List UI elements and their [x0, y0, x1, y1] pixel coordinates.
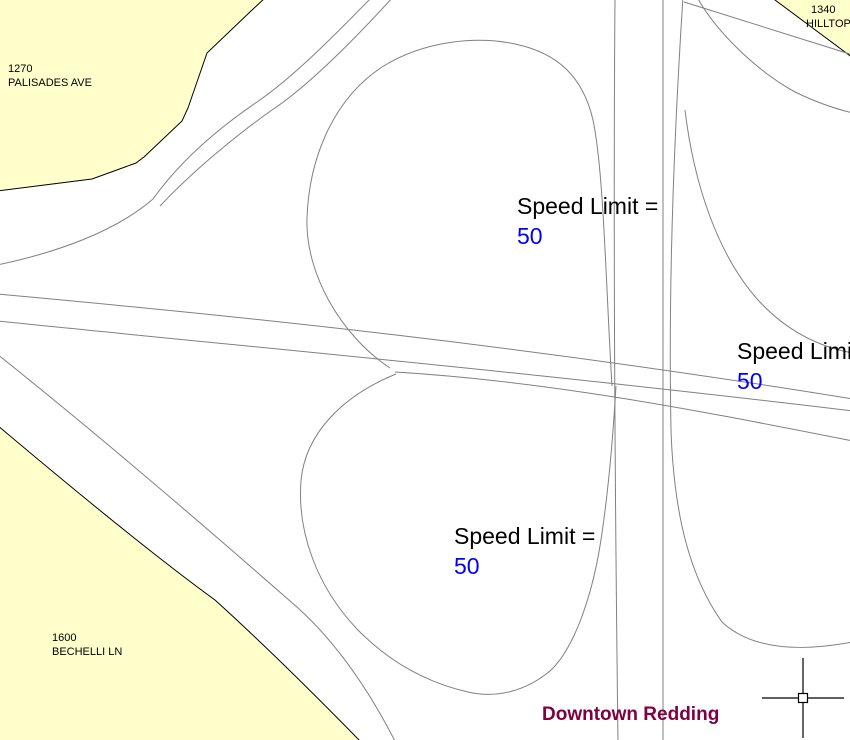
- parcel-number: 1600: [52, 631, 122, 645]
- parcel-street: BECHELLI LN: [52, 645, 122, 659]
- crosshair-cursor: [762, 658, 844, 738]
- map-canvas[interactable]: [0, 0, 850, 740]
- speed-limit-label-south: Speed Limit = 50: [454, 521, 595, 581]
- speed-limit-text: Speed Limit =: [737, 336, 850, 366]
- region-label-downtown-redding: Downtown Redding: [542, 704, 719, 726]
- speed-limit-text: Speed Limit =: [517, 191, 658, 221]
- freeway-ramp-southeast: [670, 0, 850, 647]
- arterial-line-north: [0, 294, 850, 399]
- speed-limit-text: Speed Limit =: [454, 521, 595, 551]
- arterial-line-south: [0, 321, 850, 411]
- speed-limit-value: 50: [517, 221, 658, 251]
- parcel-number: 1340: [806, 3, 850, 17]
- speed-limit-value: 50: [454, 551, 595, 581]
- parcel-label-bechelli: 1600 BECHELLI LN: [52, 631, 122, 659]
- map-viewport[interactable]: { "map": { "region_label": "Downtown Red…: [0, 0, 850, 740]
- parcel-label-palisades: 1270 PALISADES AVE: [8, 62, 92, 90]
- ramp-curve-northeast-lower: [685, 110, 850, 353]
- parcel-polygon-palisades: [0, 0, 266, 191]
- speed-limit-label-north: Speed Limit = 50: [517, 191, 658, 251]
- parcel-street: PALISADES AVE: [8, 76, 92, 90]
- parcel-label-hilltop: 1340 HILLTOP: [806, 3, 850, 31]
- freeway-line-west: [614, 0, 618, 740]
- parcel-street: HILLTOP: [806, 17, 850, 31]
- speed-limit-value: 50: [737, 366, 850, 396]
- parcel-number: 1270: [8, 62, 92, 76]
- speed-limit-label-east: Speed Limit = 50: [737, 336, 850, 396]
- parcel-polygon-bechelli: [0, 425, 362, 740]
